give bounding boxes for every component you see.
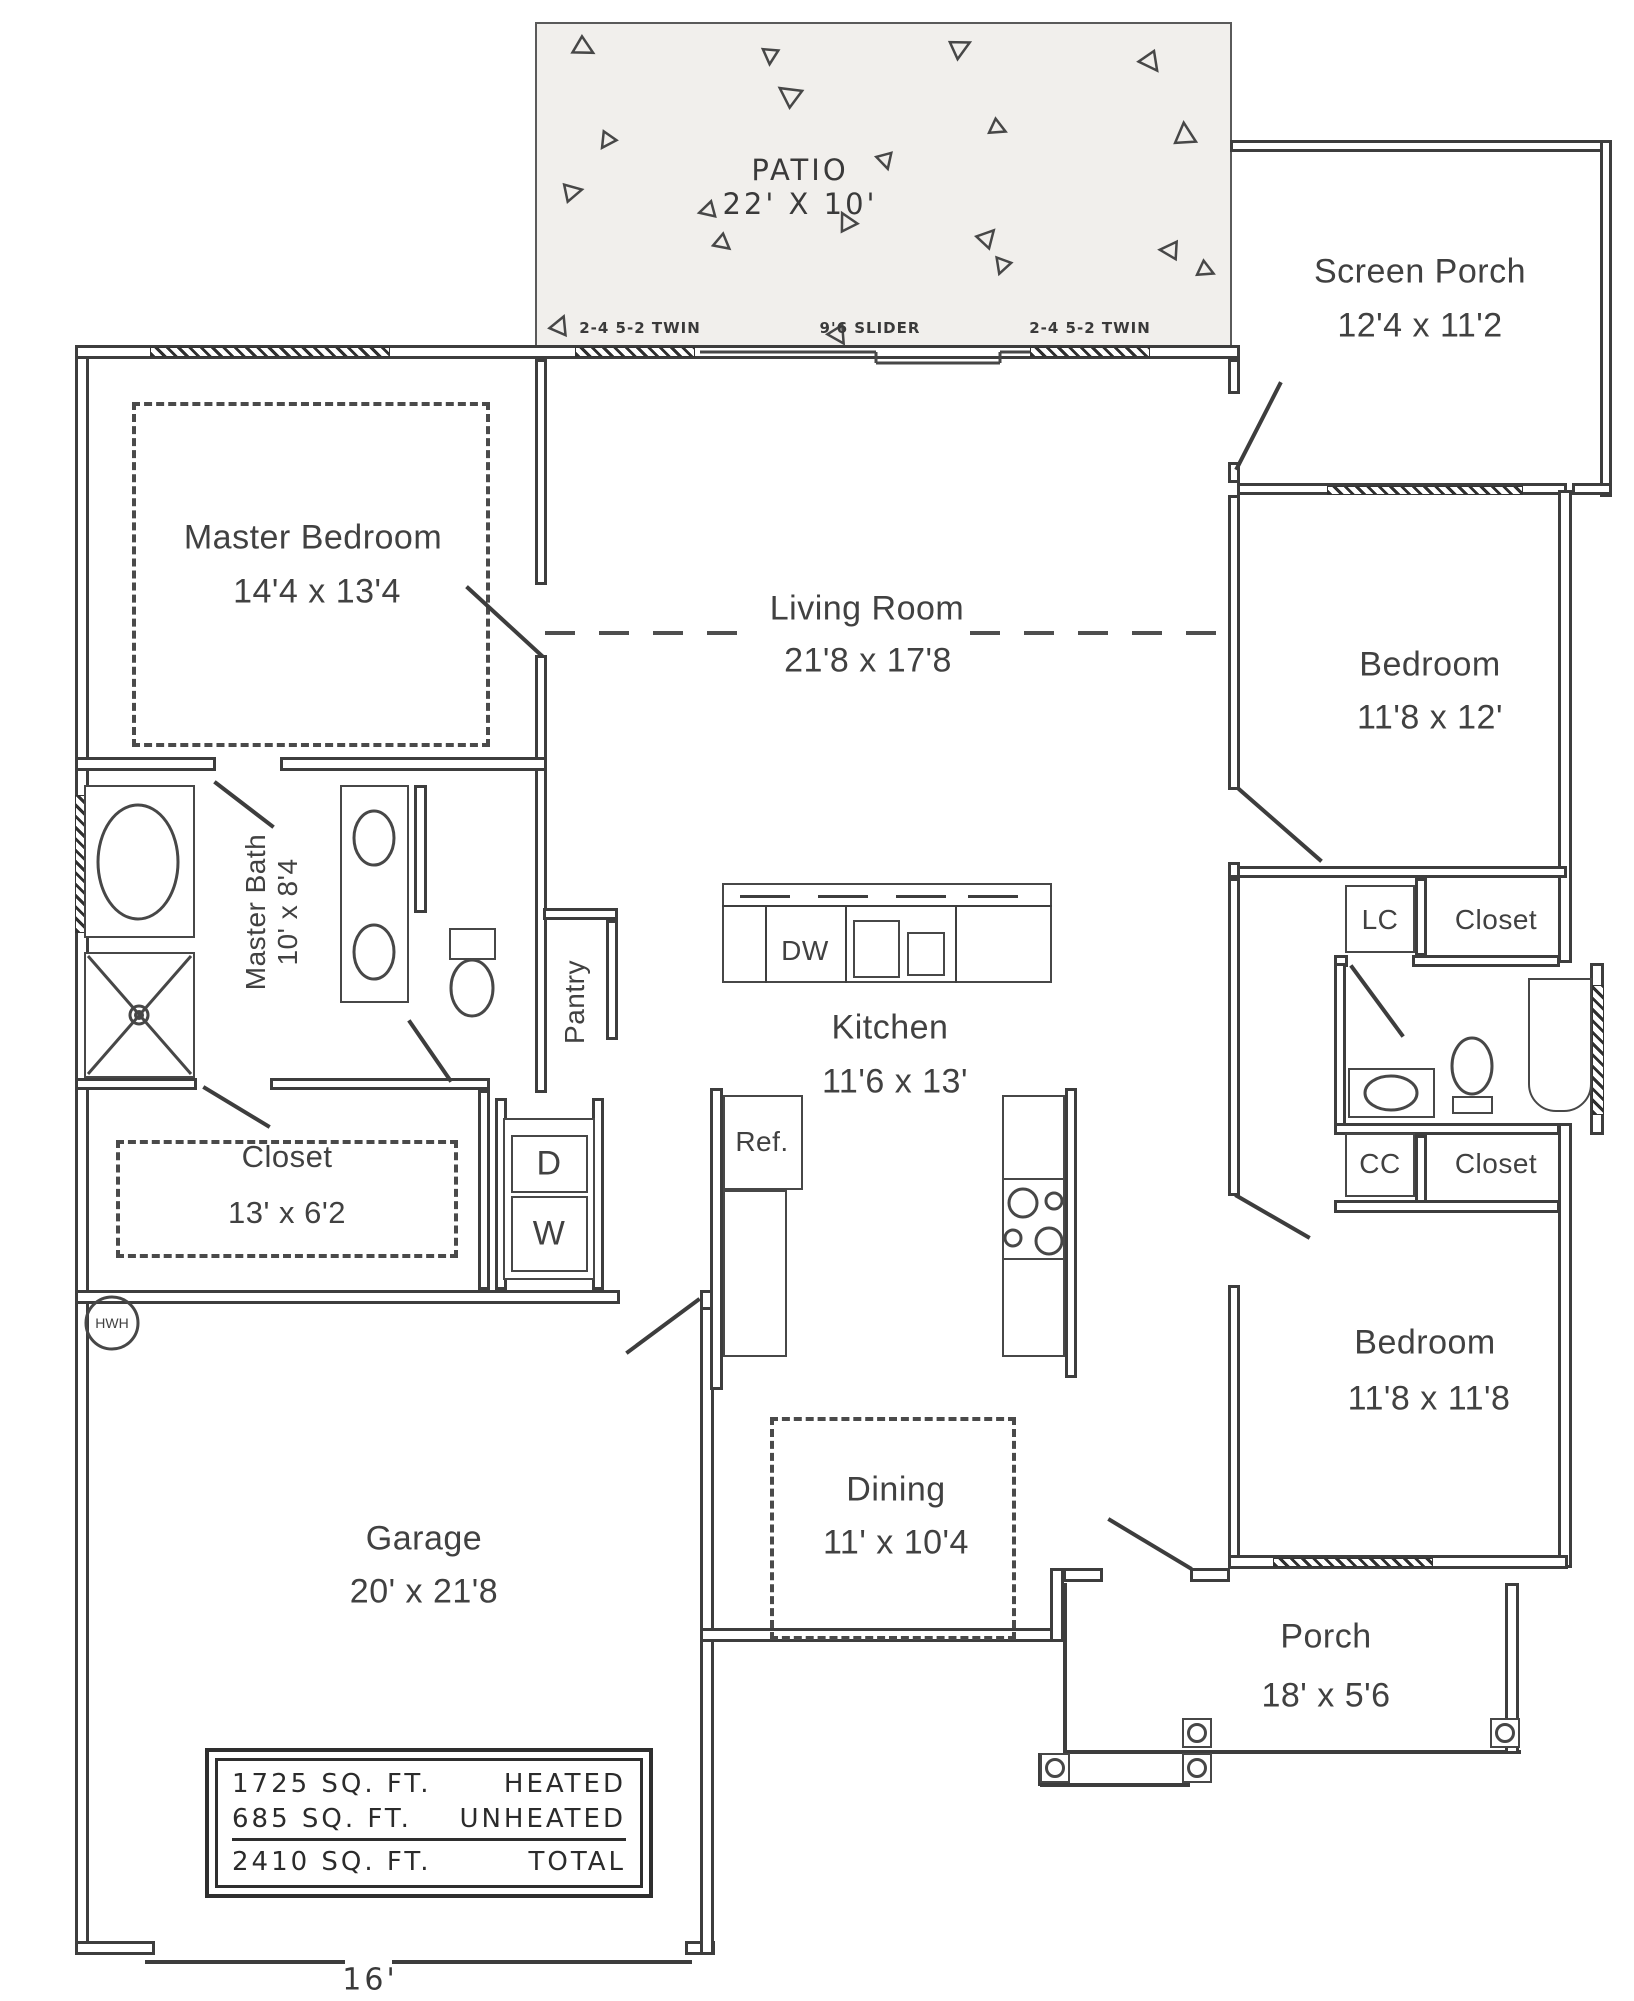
area-value: 2410 SQ. FT.: [232, 1847, 432, 1877]
room-label-master-bedroom: Master Bedroom: [184, 519, 442, 558]
vanity-sink: [354, 925, 394, 979]
window-annotation: 2-4 5-2 TWIN: [1029, 319, 1151, 337]
room-label-bedroom-lower: Bedroom: [1354, 1324, 1495, 1363]
room-label-pantry: Pantry: [559, 960, 591, 1044]
label-water-heater: HWH: [95, 1315, 128, 1331]
room-label-living-room: Living Room: [758, 590, 976, 629]
room-dims-bedroom-lower: 11'8 x 11'8: [1348, 1380, 1511, 1419]
label-refrigerator: Ref.: [735, 1126, 788, 1158]
door-swing: [205, 1088, 268, 1126]
label-dishwasher: DW: [781, 935, 829, 967]
floor-plan: PATIO 22' X 10' 2-4 5-2 TWIN 9'6 SLIDER …: [0, 0, 1634, 2001]
master-bath-name: Master Bath: [240, 834, 272, 990]
area-row-heated: 1725 SQ. FT. HEATED: [232, 1769, 626, 1799]
area-type: UNHEATED: [459, 1804, 626, 1834]
room-label-kitchen: Kitchen: [832, 1009, 949, 1048]
room-label-master-bath: Master Bath 10' x 8'4: [240, 834, 304, 990]
area-row-unheated: 685 SQ. FT. UNHEATED: [232, 1804, 626, 1834]
toilet-bowl: [451, 960, 493, 1016]
master-bath-dims: 10' x 8'4: [272, 834, 304, 990]
door-swing: [1352, 967, 1402, 1035]
area-value: 685 SQ. FT.: [232, 1804, 412, 1834]
slider-annotation: 9'6 SLIDER: [820, 319, 921, 337]
area-type: TOTAL: [529, 1847, 626, 1877]
door-swing: [468, 588, 541, 655]
label-linen-closet: LC: [1362, 904, 1399, 936]
door-swing: [1110, 1520, 1190, 1568]
room-dims-patio: 22' X 10': [722, 187, 877, 221]
room-dims-bedroom-upper: 11'8 x 12': [1357, 699, 1503, 738]
room-dims-master-bedroom: 14'4 x 13'4: [233, 573, 401, 612]
bathtub-oval: [98, 805, 178, 919]
porch-column-circle: [1047, 1760, 1064, 1777]
label-washer: W: [533, 1215, 566, 1254]
area-summary-box: 1725 SQ. FT. HEATED 685 SQ. FT. UNHEATED…: [205, 1748, 653, 1898]
room-label-dining: Dining: [846, 1471, 945, 1510]
room-dims-master-closet: 13' x 6'2: [228, 1195, 346, 1231]
door-swing: [1240, 790, 1320, 860]
shower-glyph: [88, 956, 191, 1074]
area-row-total: 2410 SQ. FT. TOTAL: [232, 1838, 626, 1877]
door-swing: [216, 783, 272, 826]
area-summary-inner: 1725 SQ. FT. HEATED 685 SQ. FT. UNHEATED…: [215, 1758, 643, 1888]
room-dims-screen-porch: 12'4 x 11'2: [1337, 307, 1502, 346]
toilet-bowl: [1452, 1038, 1492, 1094]
label-closet-upper: Closet: [1455, 904, 1537, 936]
garage-door-width-label: 16': [342, 1963, 397, 1998]
room-label-porch: Porch: [1280, 1618, 1371, 1657]
room-dims-living-room: 21'8 x 17'8: [784, 642, 952, 681]
door-swing: [410, 1022, 450, 1080]
room-label-master-closet: Closet: [242, 1139, 333, 1175]
room-dims-garage: 20' x 21'8: [350, 1573, 498, 1612]
door-swing: [628, 1300, 698, 1352]
slider-door: [700, 352, 1030, 363]
room-label-screen-porch: Screen Porch: [1314, 253, 1526, 292]
room-label-garage: Garage: [366, 1520, 482, 1559]
patio-texture-triangles: [549, 33, 1216, 348]
porch-column-circle: [1497, 1725, 1514, 1742]
area-value: 1725 SQ. FT.: [232, 1769, 432, 1799]
room-label-patio: PATIO: [751, 153, 848, 187]
porch-column-circle: [1189, 1760, 1206, 1777]
room-label-bedroom-upper: Bedroom: [1359, 646, 1500, 685]
room-dims-porch: 18' x 5'6: [1261, 1677, 1390, 1716]
window-annotation: 2-4 5-2 TWIN: [579, 319, 701, 337]
area-type: HEATED: [504, 1769, 626, 1799]
room-dims-kitchen: 11'6 x 13': [822, 1063, 968, 1102]
vanity-sink: [354, 811, 394, 865]
door-swing: [1237, 384, 1280, 468]
range-burners: [1005, 1189, 1062, 1254]
room-dims-dining: 11' x 10'4: [823, 1524, 969, 1563]
label-dryer: D: [536, 1145, 561, 1184]
label-coat-closet: CC: [1359, 1148, 1400, 1180]
label-closet-lower: Closet: [1455, 1148, 1537, 1180]
porch-column-circle: [1189, 1725, 1206, 1742]
door-swing: [1237, 1196, 1308, 1237]
vanity-sink: [1365, 1076, 1417, 1110]
